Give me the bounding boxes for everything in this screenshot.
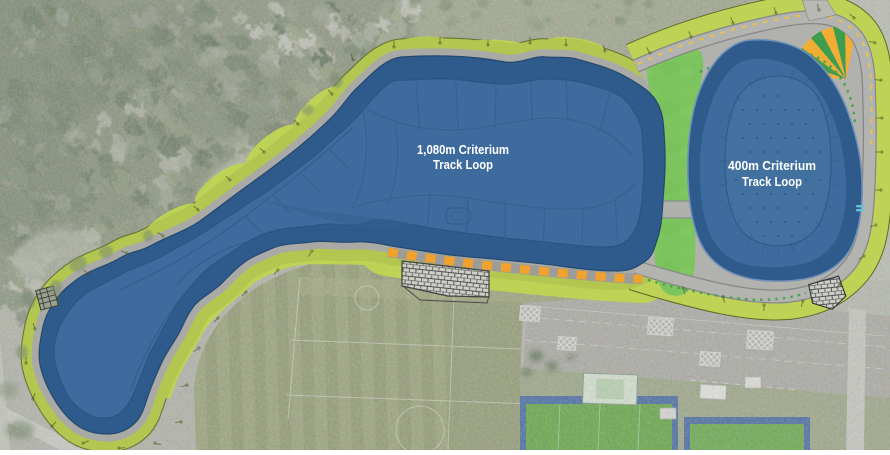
svg-text:400m Criterium: 400m Criterium xyxy=(728,159,816,173)
svg-text:Track Loop: Track Loop xyxy=(742,175,802,189)
svg-text:1,080m Criterium: 1,080m Criterium xyxy=(417,143,509,157)
svg-text:Track Loop: Track Loop xyxy=(433,158,493,172)
